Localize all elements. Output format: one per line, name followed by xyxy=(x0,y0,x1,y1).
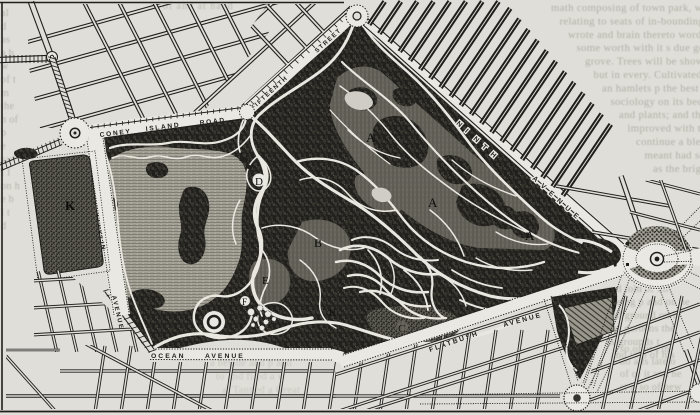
svg-text:but in every. Cultivated a: but in every. Cultivated and so xyxy=(594,69,700,81)
svg-text:A: A xyxy=(366,130,376,145)
svg-text:an hamlets p the best pans: an hamlets p the best pansies xyxy=(602,82,700,94)
svg-text:on h: on h xyxy=(1,181,20,192)
svg-text:and plants; and the p: and plants; and the p xyxy=(619,109,700,121)
svg-text:OCEAN: OCEAN xyxy=(151,353,186,360)
svg-text:D: D xyxy=(255,176,263,188)
svg-text:some worth with it s due good: some worth with it s due good in plan xyxy=(577,42,700,54)
svg-text:n of: n of xyxy=(1,114,19,125)
svg-text:to and filed a w: to and filed a w xyxy=(216,372,286,383)
svg-text:K: K xyxy=(65,198,76,213)
svg-text:A: A xyxy=(525,228,535,243)
svg-text:wrote and brain thereto words,: wrote and brain thereto words, writing xyxy=(568,29,700,41)
svg-text:grove. Trees will be shown: grove. Trees will be shown t and xyxy=(585,56,700,68)
svg-text:continue a blended it: continue a blended it xyxy=(636,136,700,148)
svg-text:A: A xyxy=(428,195,438,210)
svg-text:meant had so them: meant had so them xyxy=(645,149,700,161)
svg-text:E: E xyxy=(262,275,269,287)
svg-text:F: F xyxy=(242,297,247,307)
svg-text:B: B xyxy=(314,236,322,250)
svg-text:sociology on its become an: sociology on its become and xyxy=(611,96,700,108)
svg-text:e b: e b xyxy=(1,194,14,205)
svg-text:H: H xyxy=(329,308,336,318)
svg-text:math composing of town park, w: math composing of town park, whether t xyxy=(551,2,700,14)
svg-text:as the bright s: as the bright s xyxy=(653,163,700,175)
svg-text:of t: of t xyxy=(1,75,16,86)
svg-text:AVENUE: AVENUE xyxy=(205,353,245,360)
svg-text:improved with the me: improved with the me xyxy=(628,123,700,135)
svg-text:C: C xyxy=(398,323,405,335)
svg-text:the: the xyxy=(1,101,15,112)
svg-text:relating to seats of in-bou: relating to seats of in-bounding direct xyxy=(560,15,700,27)
